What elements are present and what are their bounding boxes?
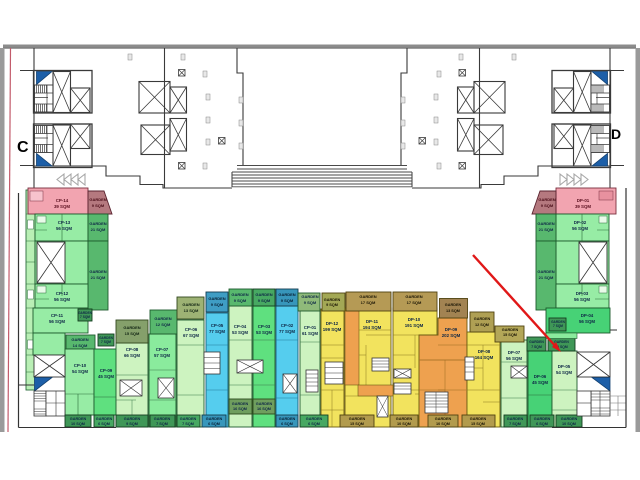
svg-text:DP-03: DP-03 (576, 291, 589, 296)
svg-text:CP-08: CP-08 (126, 347, 139, 352)
svg-text:14 SQM: 14 SQM (73, 343, 88, 348)
svg-text:DP-12: DP-12 (326, 321, 339, 326)
svg-text:CP-11: CP-11 (51, 313, 64, 318)
svg-text:GARDEN: GARDEN (208, 296, 225, 301)
svg-text:54 SQM: 54 SQM (556, 370, 572, 375)
svg-text:D: D (611, 126, 621, 142)
svg-text:C: C (17, 139, 29, 156)
svg-text:GARDEN: GARDEN (154, 417, 171, 421)
svg-text:DP-08: DP-08 (478, 349, 491, 354)
svg-text:6 SQM: 6 SQM (536, 422, 548, 426)
svg-text:9 SQM: 9 SQM (326, 303, 338, 307)
svg-text:GARDEN: GARDEN (89, 197, 106, 202)
svg-text:GARDEN: GARDEN (123, 325, 140, 330)
svg-text:7 SQM: 7 SQM (553, 324, 563, 328)
svg-text:21 SQM: 21 SQM (91, 227, 106, 232)
svg-text:DP-09: DP-09 (445, 327, 458, 332)
svg-text:GARDEN: GARDEN (306, 417, 323, 421)
svg-text:56 SQM: 56 SQM (506, 356, 522, 361)
svg-text:10 SQM: 10 SQM (397, 422, 411, 426)
svg-text:GARDEN: GARDEN (96, 417, 113, 421)
svg-text:GARDEN: GARDEN (507, 417, 524, 421)
svg-text:DP-11: DP-11 (366, 319, 379, 324)
svg-text:45 SQM: 45 SQM (98, 374, 114, 379)
svg-text:7 SQM: 7 SQM (80, 315, 90, 319)
svg-text:164 SQM: 164 SQM (475, 355, 494, 360)
svg-text:9 SQM: 9 SQM (92, 203, 105, 208)
svg-text:191 SQM: 191 SQM (405, 323, 424, 328)
svg-text:15 SQM: 15 SQM (125, 331, 140, 336)
svg-text:9 SQM: 9 SQM (281, 298, 294, 303)
svg-text:39 SQM: 39 SQM (54, 204, 70, 209)
svg-text:GARDEN: GARDEN (396, 417, 413, 421)
svg-text:67 SQM: 67 SQM (183, 333, 199, 338)
svg-text:77 SQM: 77 SQM (209, 329, 225, 334)
svg-text:GARDEN: GARDEN (182, 302, 199, 307)
svg-text:GARDEN: GARDEN (301, 294, 318, 299)
svg-text:DP-05: DP-05 (558, 364, 571, 369)
svg-text:56 SQM: 56 SQM (56, 226, 72, 231)
svg-text:CP-09: CP-09 (100, 368, 113, 373)
svg-text:77 SQM: 77 SQM (279, 329, 295, 334)
svg-text:7 SQM: 7 SQM (156, 422, 168, 426)
svg-text:CP-01: CP-01 (304, 325, 317, 330)
svg-text:9 SQM: 9 SQM (258, 298, 271, 303)
svg-text:GARDEN: GARDEN (256, 402, 273, 406)
svg-text:GARDEN: GARDEN (470, 417, 487, 421)
svg-text:DP-06: DP-06 (534, 374, 547, 379)
svg-text:DP-04: DP-04 (581, 313, 594, 318)
svg-text:15 SQM: 15 SQM (471, 422, 485, 426)
svg-text:GARDEN: GARDEN (502, 328, 519, 332)
svg-text:6 SQM: 6 SQM (98, 422, 110, 426)
svg-text:10 SQM: 10 SQM (562, 422, 576, 426)
svg-text:9 SQM: 9 SQM (211, 302, 224, 307)
svg-text:GARDEN: GARDEN (232, 402, 249, 406)
svg-text:16 SQM: 16 SQM (257, 407, 271, 411)
svg-text:GARDEN: GARDEN (445, 303, 462, 307)
svg-text:GARDEN: GARDEN (324, 298, 341, 302)
svg-text:GARDEN: GARDEN (538, 197, 555, 202)
svg-text:CP-10: CP-10 (74, 363, 87, 368)
svg-text:12 SQM: 12 SQM (475, 323, 489, 327)
svg-text:199 SQM: 199 SQM (323, 327, 342, 332)
svg-text:56 SQM: 56 SQM (572, 226, 588, 231)
svg-text:DP-02: DP-02 (574, 220, 587, 225)
svg-text:10 SQM: 10 SQM (71, 422, 85, 426)
svg-text:GARDEN: GARDEN (279, 417, 296, 421)
svg-text:9 SQM: 9 SQM (126, 422, 138, 426)
svg-text:17 SQM: 17 SQM (361, 300, 376, 305)
svg-text:CP-05: CP-05 (211, 323, 224, 328)
svg-text:10 SQM: 10 SQM (436, 422, 450, 426)
svg-text:GARDEN: GARDEN (537, 221, 554, 226)
svg-text:39 SQM: 39 SQM (575, 204, 591, 209)
svg-text:54 SQM: 54 SQM (72, 369, 88, 374)
svg-text:GARDEN: GARDEN (278, 292, 295, 297)
svg-text:CP-12: CP-12 (56, 291, 69, 296)
svg-text:GARDEN: GARDEN (405, 294, 422, 299)
svg-text:53 SQM: 53 SQM (256, 330, 272, 335)
svg-text:GARDEN: GARDEN (435, 417, 452, 421)
svg-text:GARDEN: GARDEN (349, 417, 366, 421)
svg-text:CP-13: CP-13 (58, 220, 71, 225)
svg-text:CP-07: CP-07 (156, 347, 169, 352)
svg-text:6 SQM: 6 SQM (208, 422, 220, 426)
svg-text:CP-02: CP-02 (281, 323, 294, 328)
svg-text:13 SQM: 13 SQM (184, 308, 199, 313)
svg-text:61 SQM: 61 SQM (302, 331, 318, 336)
svg-text:45 SQM: 45 SQM (532, 380, 548, 385)
svg-text:202 SQM: 202 SQM (442, 333, 461, 338)
svg-text:57 SQM: 57 SQM (154, 353, 170, 358)
svg-text:6 SQM: 6 SQM (308, 422, 320, 426)
svg-text:GARDEN: GARDEN (474, 317, 491, 321)
svg-text:DP-07: DP-07 (508, 350, 521, 355)
svg-text:DP-10: DP-10 (408, 317, 421, 322)
svg-text:GARDEN: GARDEN (180, 417, 197, 421)
svg-text:9 SQM: 9 SQM (541, 203, 554, 208)
svg-text:GARDEN: GARDEN (529, 340, 544, 344)
svg-text:56 SQM: 56 SQM (574, 297, 590, 302)
svg-text:16 SQM: 16 SQM (233, 407, 247, 411)
svg-text:13 SQM: 13 SQM (446, 309, 460, 313)
svg-text:GARDEN: GARDEN (255, 292, 272, 297)
svg-text:7 SQM: 7 SQM (531, 345, 542, 349)
svg-text:DP-01: DP-01 (577, 198, 590, 203)
svg-text:9 SQM: 9 SQM (234, 298, 247, 303)
svg-text:GARDEN: GARDEN (231, 292, 248, 297)
svg-text:GARDEN: GARDEN (154, 316, 171, 321)
svg-text:21 SQM: 21 SQM (539, 275, 554, 280)
svg-text:7 SQM: 7 SQM (182, 422, 194, 426)
svg-text:GARDEN: GARDEN (534, 417, 551, 421)
svg-text:7 SQM: 7 SQM (509, 422, 521, 426)
svg-text:GARDEN: GARDEN (71, 337, 88, 342)
svg-text:21 SQM: 21 SQM (539, 227, 554, 232)
svg-text:GARDEN: GARDEN (537, 269, 554, 274)
svg-text:66 SQM: 66 SQM (124, 353, 140, 358)
svg-text:53 SQM: 53 SQM (232, 330, 248, 335)
svg-text:56 SQM: 56 SQM (579, 319, 595, 324)
svg-text:GARDEN: GARDEN (89, 269, 106, 274)
svg-text:56 SQM: 56 SQM (54, 297, 70, 302)
svg-text:7 SQM: 7 SQM (101, 340, 111, 344)
svg-text:194 SQM: 194 SQM (363, 325, 382, 330)
svg-text:15 SQM: 15 SQM (350, 422, 364, 426)
svg-text:12 SQM: 12 SQM (156, 322, 171, 327)
svg-text:GARDEN: GARDEN (89, 221, 106, 226)
svg-text:6 SQM: 6 SQM (281, 422, 293, 426)
svg-text:CP-14: CP-14 (56, 198, 69, 203)
svg-text:GARDEN: GARDEN (70, 417, 87, 421)
svg-text:17 SQM: 17 SQM (407, 300, 422, 305)
svg-text:CP-03: CP-03 (258, 324, 271, 329)
svg-text:21 SQM: 21 SQM (91, 275, 106, 280)
svg-text:9 SQM: 9 SQM (304, 300, 317, 305)
svg-text:56 SQM: 56 SQM (49, 319, 65, 324)
svg-text:GARDEN: GARDEN (206, 417, 223, 421)
svg-text:CP-04: CP-04 (234, 324, 247, 329)
svg-text:15 SQM: 15 SQM (503, 333, 517, 337)
svg-text:CP-06: CP-06 (185, 327, 198, 332)
svg-text:GARDEN: GARDEN (561, 417, 578, 421)
svg-text:GARDEN: GARDEN (359, 294, 376, 299)
svg-text:GARDEN: GARDEN (124, 417, 141, 421)
